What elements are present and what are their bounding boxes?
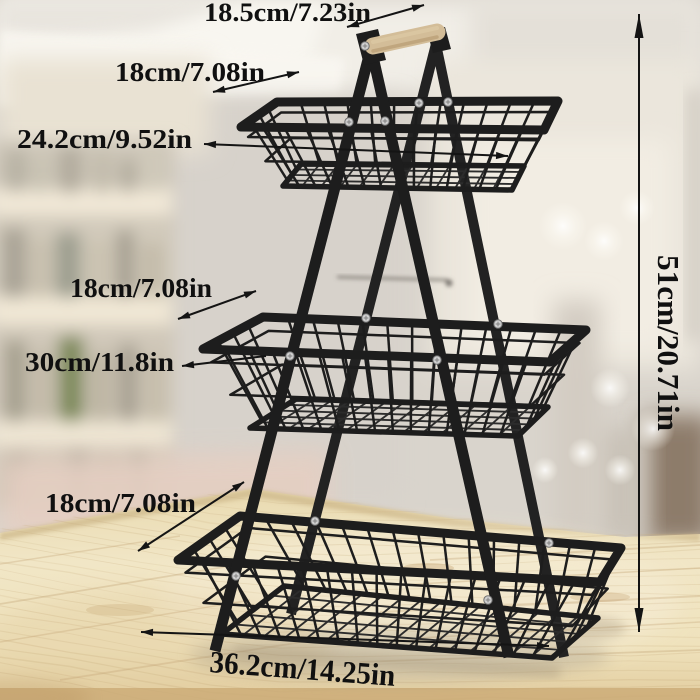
svg-text:18cm/7.08in: 18cm/7.08in xyxy=(115,57,265,87)
svg-text:18.5cm/7.23in: 18.5cm/7.23in xyxy=(204,0,372,27)
svg-text:30cm/11.8in: 30cm/11.8in xyxy=(25,347,174,377)
svg-text:51cm/20.71in: 51cm/20.71in xyxy=(651,255,686,431)
svg-text:18cm/7.08in: 18cm/7.08in xyxy=(45,488,196,518)
svg-text:18cm/7.08in: 18cm/7.08in xyxy=(70,273,212,303)
svg-text:24.2cm/9.52in: 24.2cm/9.52in xyxy=(17,124,192,154)
